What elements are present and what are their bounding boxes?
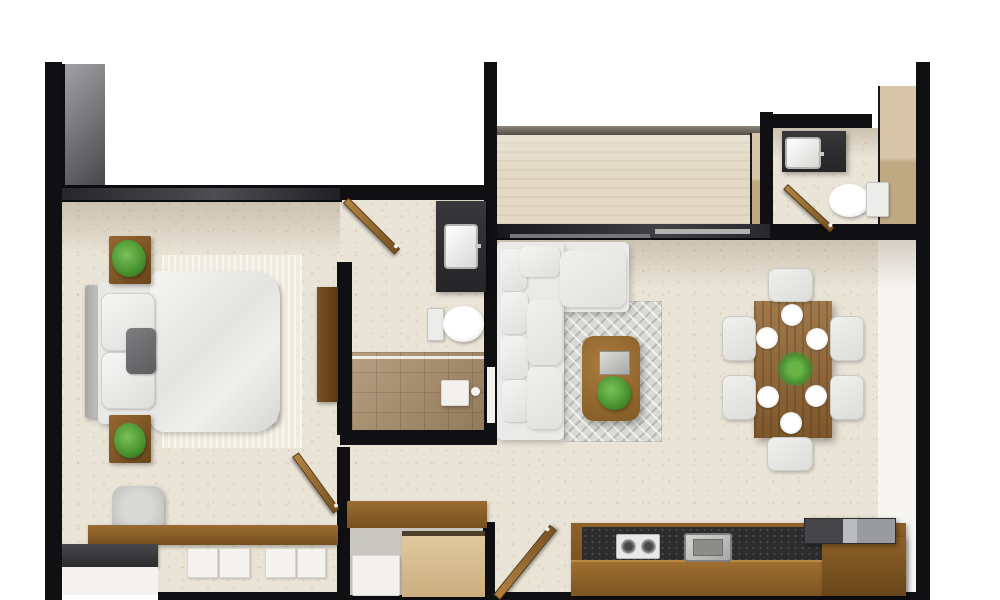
bath-left-wall — [337, 262, 352, 435]
sofa-seat-2 — [527, 367, 562, 429]
shower-glass — [352, 356, 484, 359]
burner-1 — [621, 539, 636, 554]
sofa-cushion-2 — [501, 292, 528, 334]
wardrobe-gray-panel — [62, 64, 105, 190]
terrace-right-wall — [760, 112, 773, 237]
powder-toilet-tank — [866, 182, 889, 217]
dining-plant — [776, 352, 814, 386]
burner-2 — [641, 539, 656, 554]
shower-knob — [471, 387, 480, 396]
plate-6 — [780, 412, 802, 434]
powder-bottom-wall — [770, 224, 930, 240]
window-line-2 — [510, 234, 650, 238]
dresser-front — [62, 567, 158, 595]
powder-sink — [785, 137, 821, 169]
drawer-3 — [265, 548, 296, 578]
plate-1 — [781, 304, 803, 326]
drawer-2 — [219, 548, 250, 578]
plate-4 — [757, 386, 779, 408]
terrace-right-wood — [750, 133, 760, 227]
plant-top — [112, 240, 146, 277]
shower-seat — [441, 380, 469, 406]
bath-bottom-wall — [340, 430, 497, 445]
dining-chair-left-1 — [722, 316, 756, 361]
bed-accent-pillow — [126, 328, 156, 374]
plate-5 — [805, 385, 827, 407]
coffee-plant — [597, 376, 631, 410]
bath-sink — [444, 224, 478, 269]
plant-bottom — [114, 423, 146, 458]
dining-chair-bottom — [767, 437, 813, 471]
plate-2 — [756, 327, 778, 349]
floorplan-canvas — [0, 0, 1000, 600]
bath-toilet-bowl — [443, 306, 484, 342]
kitchen-island-wood — [822, 537, 906, 596]
bedroom-desk — [88, 525, 338, 545]
plate-3 — [806, 328, 828, 350]
powder-top-wall — [770, 114, 872, 128]
media-console — [317, 287, 338, 402]
kitchen-sink — [684, 533, 732, 562]
dining-chair-left-2 — [722, 375, 756, 420]
sofa-cushion-3 — [500, 336, 528, 379]
bed-duvet — [150, 271, 280, 432]
bedroom-wall-shade — [62, 202, 340, 257]
bath-toilet-tank — [427, 308, 444, 341]
terrace-floor — [497, 133, 760, 227]
closet-box — [352, 555, 400, 596]
entry-bench — [347, 501, 487, 528]
dining-chair-right-2 — [830, 375, 864, 420]
terrace-parapet — [497, 126, 760, 135]
dining-chair-top — [768, 268, 813, 302]
dresser-top — [62, 544, 158, 567]
sofa-cushion-5 — [520, 246, 560, 277]
wall-niche — [487, 367, 495, 423]
dining-chair-right-1 — [830, 316, 864, 361]
closet-cabinet — [402, 531, 485, 597]
kitchen-front — [571, 560, 823, 596]
drawer-1 — [187, 548, 218, 578]
left-wall — [45, 62, 62, 600]
sofa-cushion-4 — [502, 380, 530, 422]
bath-top-wall — [340, 185, 497, 200]
coffee-tray — [599, 351, 630, 375]
sofa-seat-1 — [527, 300, 562, 365]
closet-left-wall — [337, 522, 350, 600]
bedroom-top-wall — [62, 185, 342, 202]
powder-toilet-bowl — [829, 184, 870, 217]
kitchen-appliance — [804, 518, 896, 544]
sofa-chaise-cushion — [560, 251, 626, 307]
drawer-4 — [297, 548, 326, 578]
window-line-1 — [655, 229, 750, 234]
right-wall — [916, 62, 930, 600]
